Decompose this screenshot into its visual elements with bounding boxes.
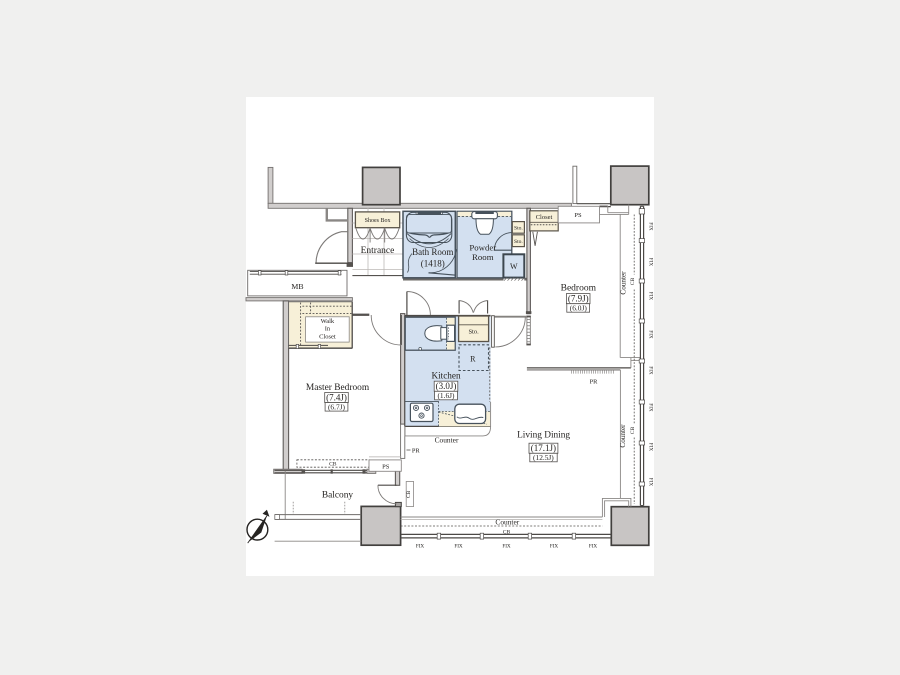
svg-text:Closet: Closet [536,214,553,221]
svg-text:CB: CB [630,427,636,435]
svg-text:Bedroom: Bedroom [561,283,597,293]
svg-text:MB: MB [291,282,303,291]
svg-text:W: W [510,262,518,271]
svg-text:Counter: Counter [435,436,459,445]
svg-text:(6.7J): (6.7J) [328,402,346,411]
svg-text:(7.9J): (7.9J) [568,294,589,304]
svg-text:(1418): (1418) [421,258,445,268]
svg-text:Counter: Counter [495,517,519,526]
svg-text:Powder: Powder [469,242,496,252]
svg-text:Room: Room [472,252,494,262]
svg-text:Sto.: Sto. [514,239,523,245]
svg-text:Kitchen: Kitchen [431,371,460,381]
svg-text:Sto.: Sto. [468,329,479,336]
svg-text:Living Dining: Living Dining [517,431,570,441]
svg-text:FIX: FIX [647,403,653,412]
svg-text:FIX: FIX [647,292,653,301]
svg-text:R: R [470,355,476,364]
svg-text:Master Bedroom: Master Bedroom [306,383,370,393]
svg-text:PS: PS [382,463,390,470]
svg-text:Walk: Walk [321,318,335,325]
svg-text:FIX: FIX [647,366,653,375]
svg-text:Balcony: Balcony [322,491,354,501]
svg-text:FIX: FIX [647,330,653,339]
svg-text:PS: PS [574,212,582,219]
svg-text:(3.0J): (3.0J) [436,381,457,391]
svg-text:(1.6J): (1.6J) [437,391,455,400]
svg-text:(7.4J): (7.4J) [326,393,347,403]
svg-text:Counter: Counter [619,271,627,295]
svg-text:FIX: FIX [550,544,559,550]
svg-text:Closet: Closet [319,333,336,340]
svg-text:(6.0J): (6.0J) [570,304,588,313]
svg-text:FIX: FIX [454,544,463,550]
svg-text:In: In [325,326,331,333]
svg-text:Entrance: Entrance [361,246,395,256]
svg-text:FIX: FIX [647,443,653,452]
svg-text:CB: CB [503,530,511,536]
svg-text:PR: PR [412,447,421,454]
svg-text:Shoes Box: Shoes Box [365,218,391,224]
svg-text:FIX: FIX [647,478,653,487]
svg-text:FIX: FIX [416,544,425,550]
svg-text:FIX: FIX [647,222,653,231]
svg-text:CB: CB [406,490,412,498]
svg-text:(17.1J): (17.1J) [531,443,556,453]
svg-text:CB: CB [329,462,337,468]
svg-text:Counter: Counter [619,424,627,448]
svg-text:FIX: FIX [589,544,598,550]
svg-text:(12.5J): (12.5J) [533,453,554,462]
svg-text:Bath Room: Bath Room [412,247,453,257]
svg-text:FIX: FIX [502,544,511,550]
svg-text:Sto.: Sto. [514,226,523,232]
svg-text:CB: CB [630,278,636,286]
svg-text:PR: PR [590,379,599,386]
svg-text:FIX: FIX [647,258,653,267]
